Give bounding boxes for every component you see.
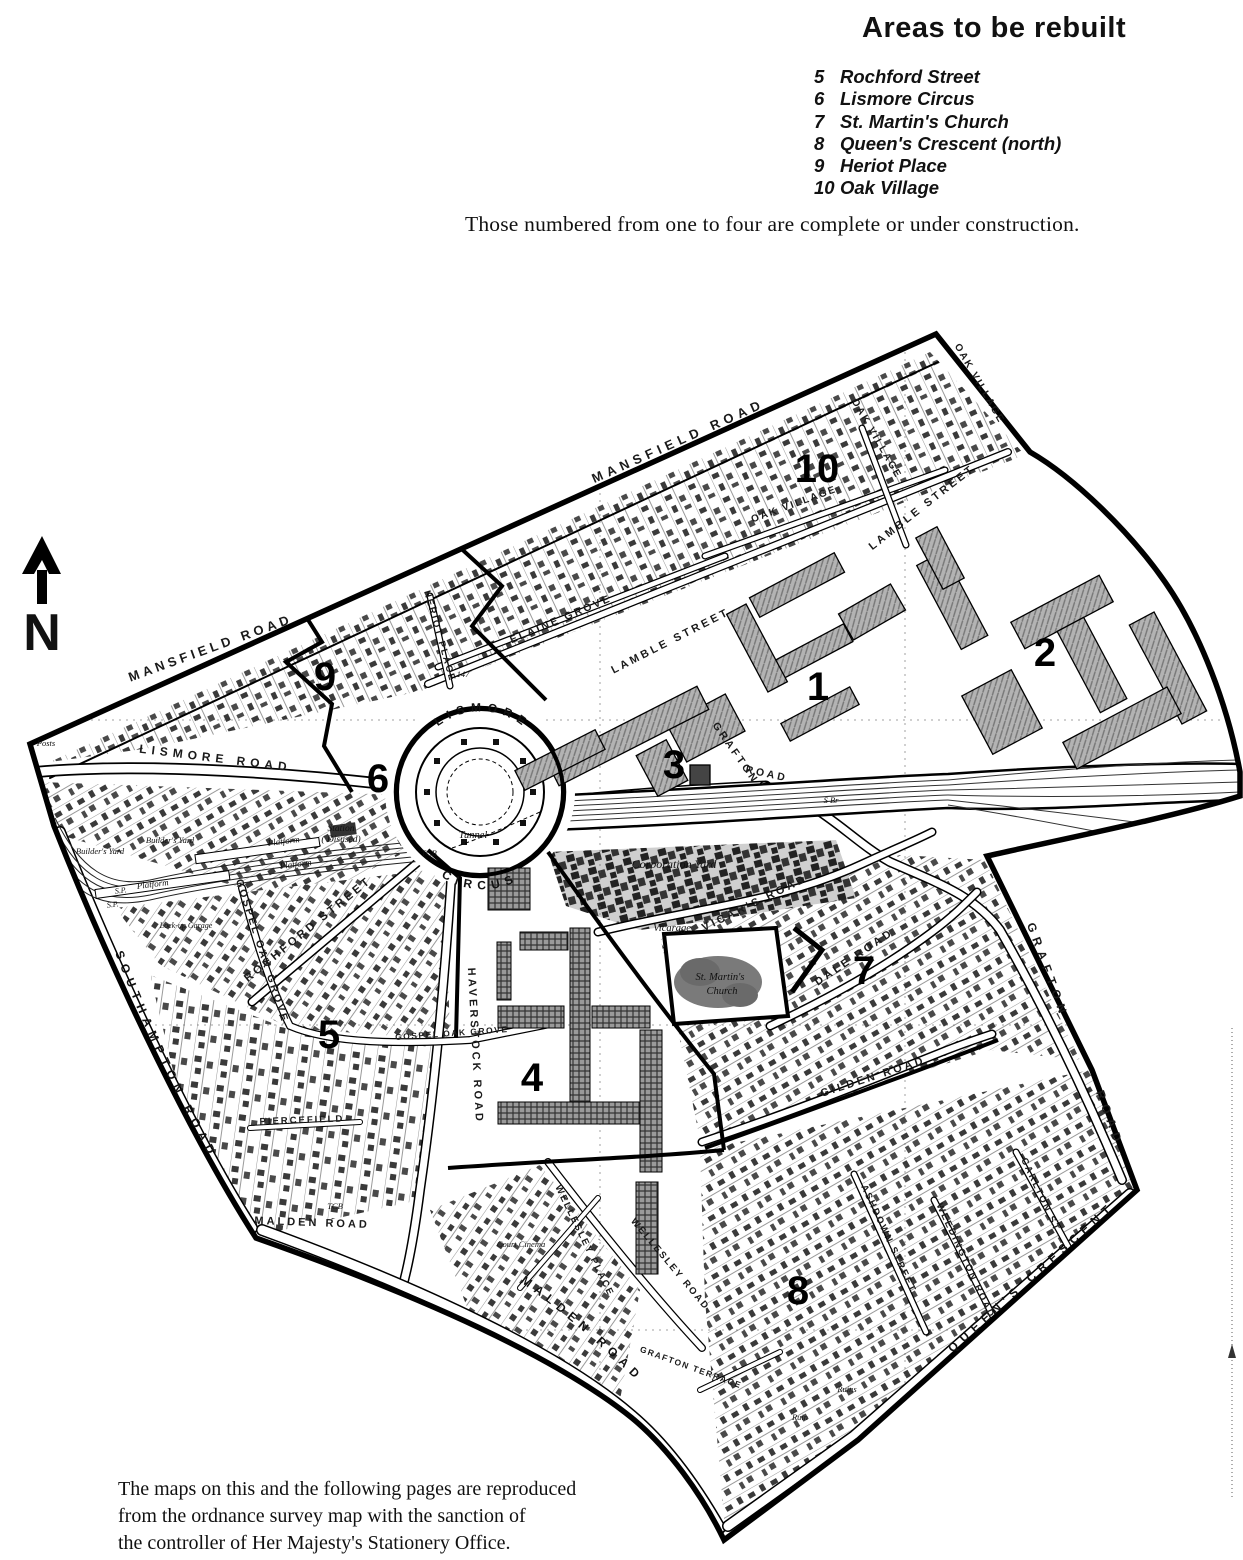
place-label-lockup-garage: Lock-up Garage xyxy=(159,921,213,930)
area-number-9: 9 xyxy=(314,655,336,699)
place-label-st-martins-church: Church xyxy=(706,986,737,997)
area-number-1: 1 xyxy=(807,665,829,709)
north-label: N xyxy=(23,604,61,662)
area-number-2: 2 xyxy=(1034,631,1056,675)
place-label-st-martins-church: St. Martin's xyxy=(696,972,745,983)
place-label-signal-bridge: S Br xyxy=(824,795,840,805)
page-edge-mark xyxy=(1228,1028,1236,1500)
place-label-station-disused: Station xyxy=(328,824,355,834)
area-number-4: 4 xyxy=(521,1056,544,1100)
place-label-ruins: Ruins xyxy=(836,1384,857,1394)
place-label-benchmark-147: 147 xyxy=(457,669,471,679)
area-number-3: 3 xyxy=(663,743,685,787)
north-arrow: N xyxy=(22,536,61,662)
area-number-5: 5 xyxy=(318,1013,340,1057)
place-label-sp: S.P. xyxy=(114,885,127,895)
lismore-circus-roundabout xyxy=(385,697,575,887)
map-body xyxy=(35,345,1240,1530)
place-label-corporation-yard: Corporation Yard xyxy=(632,857,718,871)
page: Areas to be rebuilt 5Rochford Street 6Li… xyxy=(0,0,1243,1560)
place-label-station-disused: ( Disused) xyxy=(321,834,360,845)
place-label-tcb: TCB xyxy=(421,848,437,858)
area-number-8: 8 xyxy=(787,1269,809,1313)
place-label-builders-yard: Builder's Yard xyxy=(76,846,125,856)
north-arrow-shaft xyxy=(37,570,47,604)
railway-east xyxy=(500,760,1240,848)
place-label-tunnel: Tunnel xyxy=(459,830,488,841)
street-label-haverstock-road: HAVERSTOCK ROAD xyxy=(465,967,485,1124)
footer-line: The maps on this and the following pages… xyxy=(118,1476,576,1503)
place-label-sp: S.P. xyxy=(106,899,119,909)
footer-line: from the ordnance survey map with the sa… xyxy=(118,1503,576,1530)
area-number-10: 10 xyxy=(795,447,840,491)
area-number-7: 7 xyxy=(853,949,875,993)
place-label-vicarage: Vicarage xyxy=(653,923,691,934)
ordnance-survey-map: LISMORE CIRCUS SOUTHAMPTON ROAD MALDEN R… xyxy=(0,0,1243,1560)
street-label-lamble-street: LAMBLE STREET xyxy=(609,606,731,676)
place-label-court-cinema: Court Cinema xyxy=(497,1239,545,1249)
place-label-ruin: Ruin xyxy=(791,1412,808,1422)
area-number-6: 6 xyxy=(367,757,389,801)
place-label-posts: Posts xyxy=(36,738,56,748)
place-label-tcb: TCB xyxy=(327,1201,343,1211)
footer-caption: The maps on this and the following pages… xyxy=(118,1476,576,1557)
place-label-builders-yard: Builder's Yard xyxy=(146,835,195,845)
north-arrow-icon xyxy=(22,536,61,574)
footer-line: the controller of Her Majesty's Statione… xyxy=(118,1530,576,1557)
